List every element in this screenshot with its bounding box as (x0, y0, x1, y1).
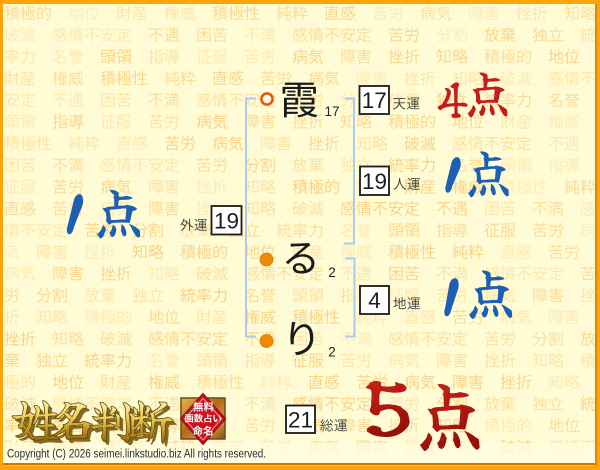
svg-text:19: 19 (214, 208, 239, 233)
svg-text:17: 17 (324, 104, 339, 119)
svg-text:2: 2 (328, 345, 336, 360)
svg-text:2: 2 (328, 265, 336, 280)
svg-text:4: 4 (368, 288, 381, 313)
svg-text:19: 19 (362, 169, 387, 194)
svg-text:21: 21 (288, 407, 313, 432)
svg-text:Copyright (C) 2026 seimei.link: Copyright (C) 2026 seimei.linkstudio.biz… (7, 449, 266, 461)
svg-text:17: 17 (362, 88, 387, 113)
